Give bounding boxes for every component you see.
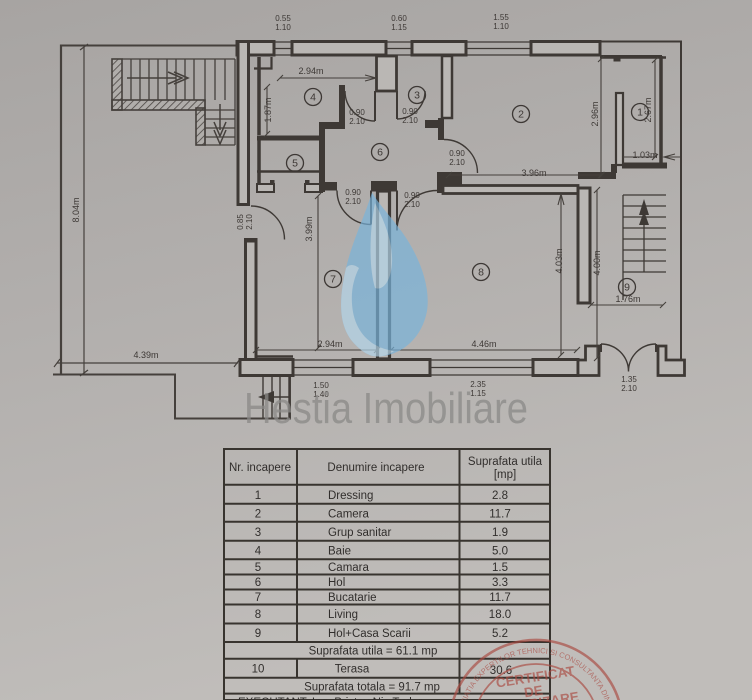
svg-text:2: 2 bbox=[255, 509, 261, 521]
svg-text:2.10: 2.10 bbox=[621, 384, 637, 393]
svg-text:8: 8 bbox=[255, 609, 261, 621]
svg-text:2.8: 2.8 bbox=[492, 490, 508, 502]
svg-text:Suprafata utila = 61.1 mp: Suprafata utila = 61.1 mp bbox=[309, 646, 438, 658]
svg-text:1.35: 1.35 bbox=[621, 375, 637, 384]
svg-text:1.55: 1.55 bbox=[493, 13, 509, 22]
svg-text:Terasa: Terasa bbox=[335, 664, 370, 676]
svg-text:4: 4 bbox=[255, 546, 262, 558]
svg-text:0.90: 0.90 bbox=[345, 188, 361, 197]
svg-text:18.0: 18.0 bbox=[489, 609, 511, 621]
svg-text:3.3: 3.3 bbox=[492, 577, 508, 589]
svg-text:1: 1 bbox=[637, 107, 643, 119]
svg-text:6: 6 bbox=[377, 147, 383, 159]
svg-text:1.03m: 1.03m bbox=[632, 150, 657, 160]
svg-text:Denumire incapere: Denumire incapere bbox=[327, 462, 424, 474]
svg-text:2.10: 2.10 bbox=[349, 117, 365, 126]
svg-text:4.46m: 4.46m bbox=[471, 339, 496, 349]
svg-text:1.5: 1.5 bbox=[492, 562, 508, 574]
svg-text:7: 7 bbox=[330, 274, 336, 286]
svg-text:1.10: 1.10 bbox=[275, 23, 291, 32]
svg-text:2.96m: 2.96m bbox=[590, 101, 600, 126]
svg-text:2.10: 2.10 bbox=[245, 214, 254, 230]
svg-text:1: 1 bbox=[255, 490, 261, 502]
svg-text:Camera: Camera bbox=[328, 509, 370, 521]
svg-text:1.10: 1.10 bbox=[493, 22, 509, 31]
svg-text:0.90: 0.90 bbox=[404, 191, 420, 200]
svg-text:2.94m: 2.94m bbox=[317, 339, 342, 349]
svg-text:8.04m: 8.04m bbox=[71, 197, 81, 222]
svg-text:4.00m: 4.00m bbox=[592, 250, 602, 275]
svg-text:6: 6 bbox=[255, 577, 261, 589]
svg-text:Nr. incapere: Nr. incapere bbox=[229, 462, 291, 474]
svg-text:9: 9 bbox=[624, 282, 630, 294]
svg-text:0.90: 0.90 bbox=[449, 149, 465, 158]
svg-text:2.10: 2.10 bbox=[404, 200, 420, 209]
svg-text:Hol+Casa Scarii: Hol+Casa Scarii bbox=[328, 628, 411, 640]
svg-text:9: 9 bbox=[255, 628, 261, 640]
svg-text:11.7: 11.7 bbox=[489, 509, 511, 521]
svg-text:3: 3 bbox=[255, 527, 261, 539]
svg-text:5.0: 5.0 bbox=[492, 546, 508, 558]
svg-text:3.96m: 3.96m bbox=[521, 168, 546, 178]
svg-text:Camara: Camara bbox=[328, 562, 370, 574]
svg-text:Hestia Imobiliare: Hestia Imobiliare bbox=[244, 384, 528, 433]
svg-text:2.94m: 2.94m bbox=[298, 66, 323, 76]
svg-text:2.10: 2.10 bbox=[402, 116, 418, 125]
svg-text:1.9: 1.9 bbox=[492, 527, 508, 539]
svg-text:5.2: 5.2 bbox=[492, 628, 508, 640]
svg-text:0.90: 0.90 bbox=[402, 107, 418, 116]
svg-text:Hol: Hol bbox=[328, 577, 345, 589]
svg-text:5: 5 bbox=[292, 158, 298, 170]
svg-text:0.60: 0.60 bbox=[391, 14, 407, 23]
svg-text:2.10: 2.10 bbox=[449, 158, 465, 167]
svg-text:0.55: 0.55 bbox=[275, 14, 291, 23]
svg-text:5: 5 bbox=[255, 562, 261, 574]
svg-text:7: 7 bbox=[255, 592, 261, 604]
svg-text:1.15: 1.15 bbox=[391, 23, 407, 32]
svg-text:3: 3 bbox=[414, 90, 420, 102]
svg-text:2.10: 2.10 bbox=[345, 197, 361, 206]
svg-text:11.7: 11.7 bbox=[489, 592, 511, 604]
svg-text:4.03m: 4.03m bbox=[554, 248, 564, 273]
svg-text:0.85: 0.85 bbox=[236, 214, 245, 230]
svg-text:4.39m: 4.39m bbox=[133, 350, 158, 360]
svg-text:Bucatarie: Bucatarie bbox=[328, 592, 377, 604]
svg-text:Suprafata utila: Suprafata utila bbox=[468, 456, 543, 468]
svg-text:2: 2 bbox=[518, 109, 524, 121]
svg-text:Dressing: Dressing bbox=[328, 490, 373, 502]
svg-text:4: 4 bbox=[310, 92, 316, 104]
svg-text:Suprafata totala = 91.7 mp: Suprafata totala = 91.7 mp bbox=[304, 682, 440, 694]
svg-text:Grup sanitar: Grup sanitar bbox=[328, 527, 391, 539]
svg-text:0.90: 0.90 bbox=[349, 108, 365, 117]
svg-text:8: 8 bbox=[478, 267, 484, 279]
svg-text:Living: Living bbox=[328, 609, 358, 621]
svg-text:1.87m: 1.87m bbox=[263, 97, 273, 122]
svg-text:[mp]: [mp] bbox=[494, 469, 516, 481]
svg-text:3.99m: 3.99m bbox=[304, 216, 314, 241]
svg-text:Baie: Baie bbox=[328, 546, 351, 558]
svg-text:10: 10 bbox=[252, 664, 265, 676]
